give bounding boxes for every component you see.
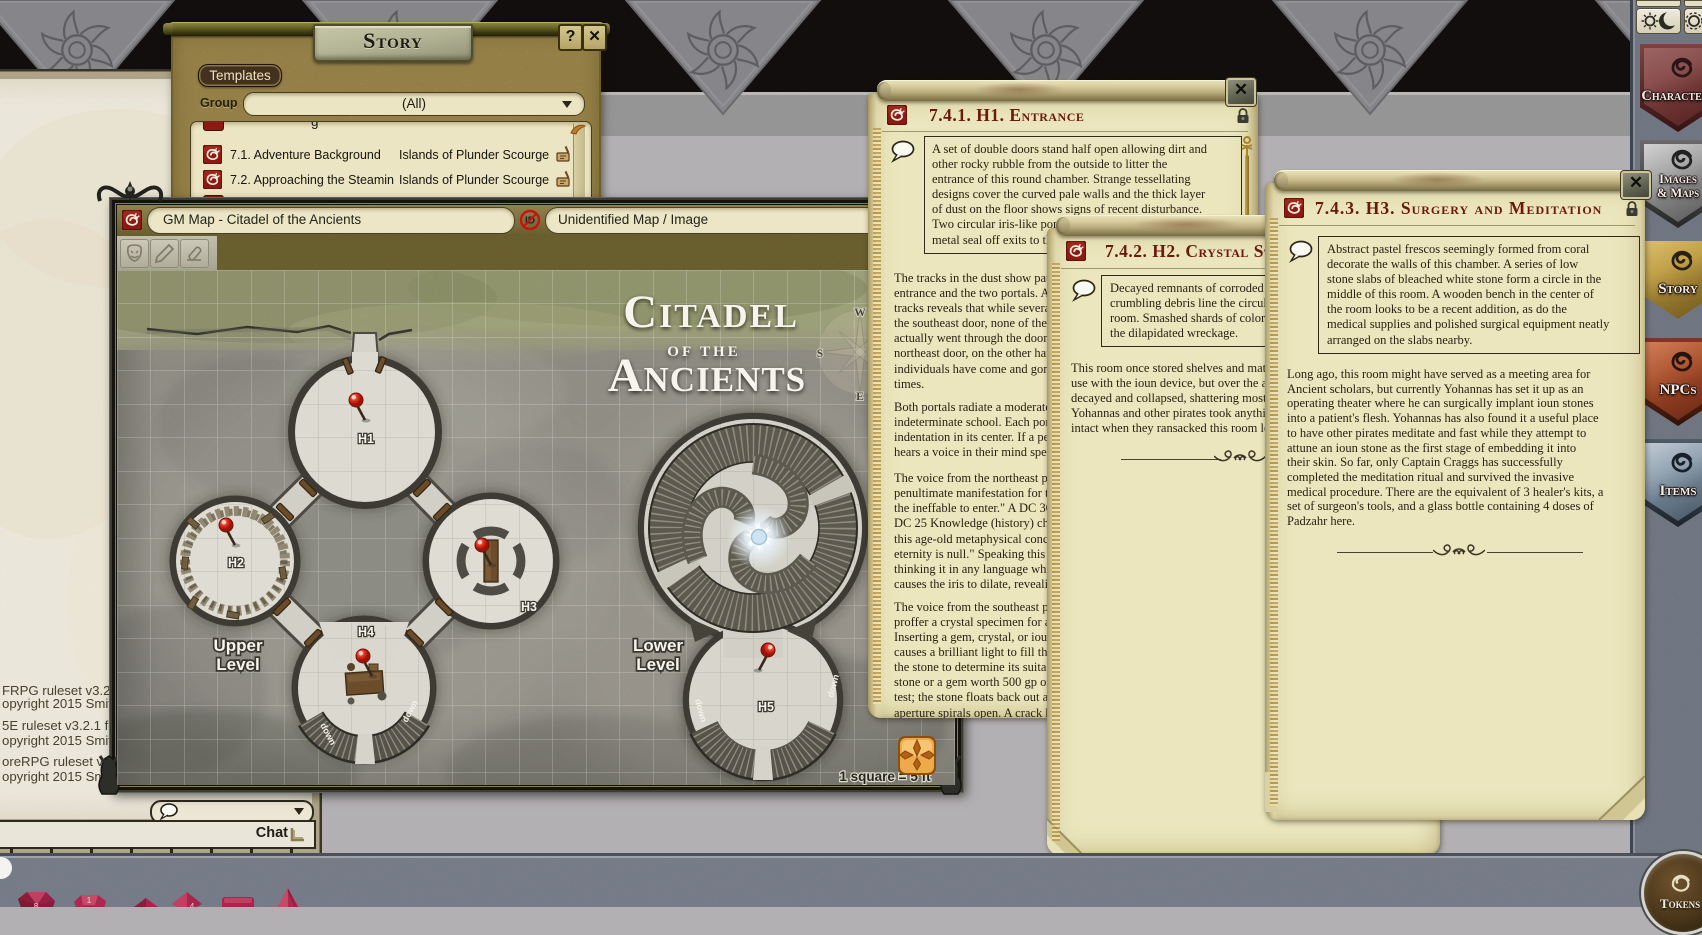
svg-text:Level: Level bbox=[636, 655, 679, 674]
svg-text:OF THE: OF THE bbox=[667, 344, 740, 360]
svg-text:H3: H3 bbox=[521, 600, 537, 614]
svg-text:H5: H5 bbox=[758, 700, 774, 714]
svg-text:H1: H1 bbox=[358, 432, 374, 446]
svg-text:8: 8 bbox=[34, 902, 39, 907]
svg-text:W: W bbox=[854, 307, 866, 319]
svg-text:Lower: Lower bbox=[633, 636, 683, 655]
svg-text:Upper: Upper bbox=[213, 636, 263, 655]
svg-text:H4: H4 bbox=[358, 625, 374, 639]
svg-text:Level: Level bbox=[216, 655, 259, 674]
svg-text:1: 1 bbox=[87, 896, 92, 905]
svg-text:E: E bbox=[856, 391, 864, 403]
svg-text:H2: H2 bbox=[228, 556, 244, 570]
svg-text:S: S bbox=[817, 348, 823, 360]
svg-text:4: 4 bbox=[190, 902, 195, 907]
